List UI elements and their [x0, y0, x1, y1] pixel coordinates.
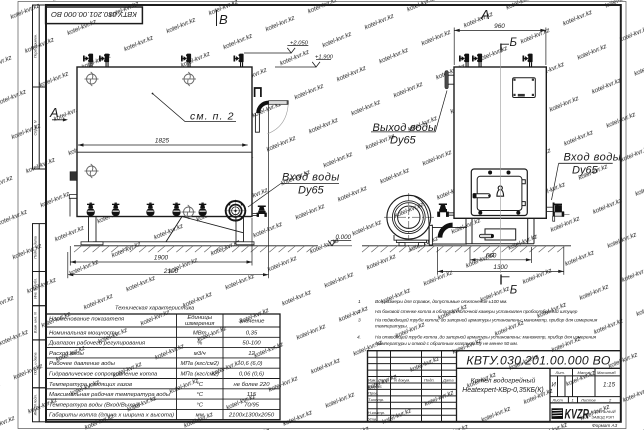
svg-text:Расход воды: Расход воды	[49, 351, 85, 357]
svg-text:измерения: измерения	[185, 321, 215, 327]
svg-text:Heatexpert-КВр-0,35КБ(К): Heatexpert-КВр-0,35КБ(К)	[462, 387, 543, 394]
svg-text:12: 12	[248, 351, 255, 357]
svg-text:50-100: 50-100	[242, 341, 261, 347]
svg-text:температуры.: температуры.	[375, 324, 408, 329]
svg-text:Температура воды (Вход/Выход): Температура воды (Вход/Выход)	[49, 402, 140, 408]
svg-text:°С: °С	[196, 402, 203, 408]
svg-text:Все размеры для справок, допус: Все размеры для справок, допустимые откл…	[375, 299, 507, 305]
svg-text:Dy65: Dy65	[572, 164, 599, 176]
svg-text:А: А	[480, 7, 490, 22]
svg-text:°С: °С	[196, 382, 203, 388]
svg-text:1825: 1825	[155, 137, 170, 144]
svg-text:Лист: Лист	[552, 398, 564, 403]
svg-text:см. п. 2: см. п. 2	[190, 110, 235, 122]
svg-text:Dy65: Dy65	[298, 185, 325, 197]
svg-text:Изм.: Изм.	[368, 378, 377, 383]
svg-text:660: 660	[486, 252, 497, 259]
svg-text:Н.контр.: Н.контр.	[368, 410, 385, 415]
svg-text:Вход воды: Вход воды	[564, 151, 622, 163]
svg-text:4.: 4.	[357, 334, 361, 340]
svg-text:+1.900: +1.900	[315, 55, 334, 61]
svg-text:Подп.: Подп.	[424, 378, 435, 383]
svg-text:м3/ч: м3/ч	[194, 351, 206, 357]
svg-text:%: %	[197, 341, 202, 347]
svg-text:Разраб.: Разраб.	[368, 384, 382, 389]
svg-text:115: 115	[247, 392, 257, 398]
svg-text:Масштаб: Масштаб	[597, 370, 616, 375]
svg-text:0,6 (6,0): 0,6 (6,0)	[241, 361, 263, 367]
svg-text:ЗАВОД РЭП: ЗАВОД РЭП	[592, 414, 615, 419]
svg-text:Лит.: Лит.	[555, 370, 565, 375]
svg-text:Б: Б	[510, 37, 518, 49]
svg-text:Подп. и дата: Подп. и дата	[34, 236, 38, 259]
svg-text:А: А	[49, 105, 59, 120]
svg-text:N докум.: N докум.	[394, 378, 410, 383]
svg-text:0.000: 0.000	[336, 234, 352, 241]
svg-text:Температура уходящих газов: Температура уходящих газов	[49, 382, 132, 388]
svg-text:Справ. N: Справ. N	[34, 120, 38, 135]
svg-text:Техническая характеристика: Техническая характеристика	[115, 306, 194, 312]
svg-text:Листов: Листов	[580, 398, 596, 403]
svg-text:Рабочее давление воды: Рабочее давление воды	[49, 361, 116, 367]
svg-text:Пров.: Пров.	[368, 391, 379, 396]
svg-text:На отводящей трубе котла ,до з: На отводящей трубе котла ,до запорной ар…	[375, 333, 597, 340]
svg-text:Диапазон рабочего регулировани: Диапазон рабочего регулирования	[48, 341, 146, 347]
svg-text:2100: 2100	[163, 268, 179, 275]
svg-text:Перв. примен.: Перв. примен.	[34, 34, 38, 58]
svg-text:Инв. N дубл.: Инв. N дубл.	[34, 278, 38, 299]
svg-text:МВт: МВт	[193, 330, 207, 336]
svg-text:не более 220: не более 220	[234, 382, 271, 388]
svg-text:2: 2	[357, 309, 361, 315]
svg-text:Дата: Дата	[442, 378, 454, 383]
svg-text:Инв. N подл.: Инв. N подл.	[34, 394, 38, 415]
svg-text:2100х1300х2050: 2100х1300х2050	[228, 413, 275, 419]
svg-text:Гидравлическое сопротивление к: Гидравлическое сопротивление котла	[49, 372, 158, 378]
svg-text:Масса: Масса	[578, 370, 591, 375]
svg-text:Взам. инв. N: Взам. инв. N	[34, 312, 38, 333]
svg-text:Номинальная мощность: Номинальная мощность	[49, 330, 118, 336]
svg-text:температуры и отвод с обратным: температуры и отвод с обратным клапаном …	[375, 341, 518, 347]
svg-text:Вход воды: Вход воды	[282, 172, 340, 184]
svg-text:°С: °С	[196, 392, 203, 398]
svg-text:На боковой стенке котла в обла: На боковой стенке котла в области топочн…	[375, 308, 578, 315]
svg-text:Утв.: Утв.	[368, 416, 377, 421]
svg-text:МПа (кгс/см2): МПа (кгс/см2)	[180, 361, 219, 367]
svg-text:Формат А3: Формат А3	[592, 423, 618, 428]
svg-text:КВТУ.030.201.00.000 ВО: КВТУ.030.201.00.000 ВО	[466, 354, 610, 368]
svg-text:мм: мм	[196, 413, 204, 419]
svg-text:Максимальная рабочая температу: Максимальная рабочая температура воды	[49, 392, 171, 398]
svg-text:МПа (кгс/см2): МПа (кгс/см2)	[180, 372, 219, 378]
svg-text:1: 1	[572, 398, 574, 403]
svg-text:Габариты котла (длина х ширина: Габариты котла (длина х ширина х высота)	[49, 413, 174, 419]
svg-text:Б: Б	[510, 285, 518, 297]
svg-text:И: И	[552, 383, 557, 389]
svg-text:На подводящей трубе котла, д: На подводящей трубе котла, до запорной а…	[375, 316, 598, 323]
svg-text:КОТЕЛЬНЫЙ: КОТЕЛЬНЫЙ	[591, 409, 616, 414]
svg-text:Котел водогрейный: Котел водогрейный	[471, 376, 536, 384]
svg-text:960: 960	[494, 23, 505, 30]
svg-text:1900: 1900	[154, 255, 169, 262]
svg-text:1: 1	[358, 299, 361, 305]
svg-text:Т.контр.: Т.контр.	[368, 397, 384, 402]
svg-text:+2.050: +2.050	[290, 41, 309, 47]
svg-text:КВТУ.030.201.00.000 ВО: КВТУ.030.201.00.000 ВО	[51, 10, 137, 19]
svg-text:1300: 1300	[493, 264, 508, 271]
svg-text:Наименование показателя: Наименование показателя	[49, 317, 125, 323]
svg-text:3: 3	[358, 317, 361, 323]
svg-text:KVZR: KVZR	[565, 407, 590, 422]
svg-text:0,06 (0,6): 0,06 (0,6)	[239, 372, 264, 378]
svg-text:В: В	[219, 12, 228, 27]
svg-text:Подп. и дата: Подп. и дата	[34, 353, 38, 376]
svg-text:Лист: Лист	[377, 378, 389, 383]
svg-text:0,35: 0,35	[246, 330, 258, 336]
svg-text:Dy65: Dy65	[390, 135, 417, 147]
svg-text:1:15: 1:15	[603, 382, 616, 389]
svg-text:Значение: Значение	[239, 319, 266, 325]
svg-text:70/95: 70/95	[244, 402, 259, 408]
